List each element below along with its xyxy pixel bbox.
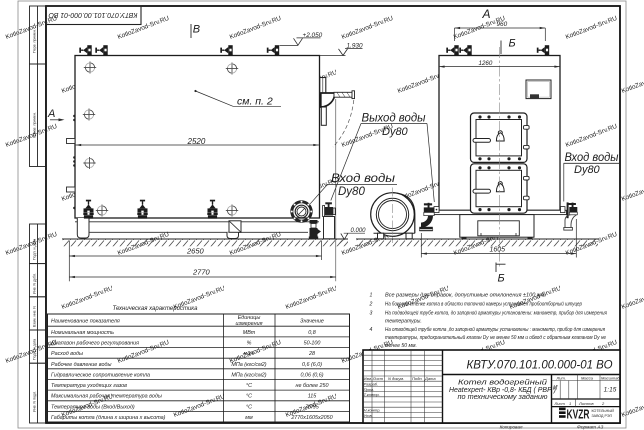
svg-text:Значение: Значение <box>300 319 324 325</box>
svg-text:Dy80: Dy80 <box>338 186 365 198</box>
svg-text:Dy80: Dy80 <box>382 126 409 138</box>
svg-text:Номинальная мощность: Номинальная мощность <box>51 330 114 336</box>
svg-text:Температура воды (Вход/Выход): Температура воды (Вход/Выход) <box>51 404 135 410</box>
svg-text:%: % <box>247 341 252 347</box>
svg-text:3: 3 <box>370 311 373 317</box>
svg-text:Dy80: Dy80 <box>574 164 601 176</box>
svg-text:115: 115 <box>308 394 318 400</box>
svg-text:°С: °С <box>246 394 252 400</box>
svg-text:Подп. и дата: Подп. и дата <box>33 239 37 260</box>
svg-text:70/95: 70/95 <box>305 404 319 410</box>
svg-text:Т.контр.: Т.контр. <box>364 392 380 397</box>
svg-text:Взам. инв. N: Взам. инв. N <box>33 306 37 327</box>
svg-text:1:15: 1:15 <box>604 387 617 394</box>
svg-text:Подп.: Подп. <box>412 376 423 381</box>
svg-text:2: 2 <box>369 302 373 308</box>
svg-text:Лит.: Лит. <box>556 376 566 381</box>
svg-text:МВт: МВт <box>243 330 256 336</box>
svg-text:1260: 1260 <box>479 60 493 67</box>
svg-text:Максимальная рабочая температу: Максимальная рабочая температура воды <box>51 394 162 400</box>
svg-text:см. п. 2: см. п. 2 <box>237 95 273 107</box>
svg-text:2770х1605х2050: 2770х1605х2050 <box>290 415 332 421</box>
svg-text:4: 4 <box>370 327 373 333</box>
svg-text:Подп. и дата: Подп. и дата <box>33 339 37 360</box>
svg-text:°С: °С <box>246 383 252 389</box>
svg-text:Перв. примен.: Перв. примен. <box>33 29 37 53</box>
svg-text:Выход воды: Выход воды <box>362 113 427 125</box>
svg-text:Все размеры для справок, допус: Все размеры для справок, допустимые откл… <box>385 293 546 299</box>
svg-text:Габариты котла (длина х ширина: Габариты котла (длина х ширина х высота) <box>51 415 166 421</box>
svg-text:КВТУ.070.101.00.000-01 ВО: КВТУ.070.101.00.000-01 ВО <box>48 11 137 20</box>
svg-text:Утв.: Утв. <box>364 413 373 418</box>
svg-text:N докум.: N докум. <box>388 376 404 381</box>
svg-text:Наименование показателя: Наименование показателя <box>51 319 120 325</box>
svg-text:2520: 2520 <box>187 137 206 146</box>
svg-text:Лист: Лист <box>372 376 384 381</box>
svg-text:Температура уходящих газов: Температура уходящих газов <box>51 383 127 389</box>
svg-text:И: И <box>553 384 558 391</box>
svg-text:Диапазон рабочего регулировани: Диапазон рабочего регулирования <box>50 341 139 347</box>
svg-text:На отводящей трубе котла ,до з: На отводящей трубе котла ,до запорной ар… <box>385 326 605 333</box>
svg-text:А: А <box>47 108 55 120</box>
svg-text:1: 1 <box>569 401 571 406</box>
svg-text:Б: Б <box>509 38 516 50</box>
svg-text:А: А <box>482 7 491 21</box>
svg-text:960: 960 <box>497 21 508 28</box>
svg-text:не более 250: не более 250 <box>296 383 329 389</box>
svg-text:измерения: измерения <box>236 321 263 327</box>
svg-text:Расход воды: Расход воды <box>51 351 83 357</box>
svg-text:Инв. N подл.: Инв. N подл. <box>33 391 37 412</box>
svg-text:МПа (кгс/см2): МПа (кгс/см2) <box>231 372 266 378</box>
svg-text:температуры.: температуры. <box>385 318 422 324</box>
svg-text:1605: 1605 <box>490 247 506 254</box>
svg-text:по техническому заданию: по техническому заданию <box>458 393 548 401</box>
svg-text:Масса: Масса <box>581 376 594 381</box>
svg-text:2650: 2650 <box>186 247 205 256</box>
svg-text:28: 28 <box>308 351 315 357</box>
svg-text:Формат А3: Формат А3 <box>577 425 604 430</box>
svg-text:КВТУ.070.101.00.000-01 ВО: КВТУ.070.101.00.000-01 ВО <box>467 357 613 371</box>
svg-text:Котел водогрейный: Котел водогрейный <box>458 378 547 386</box>
svg-text:Рабочее давление воды: Рабочее давление воды <box>51 362 111 368</box>
svg-text:Инв. N дубл.: Инв. N дубл. <box>33 273 37 294</box>
svg-text:м3/ч: м3/ч <box>244 351 255 357</box>
svg-text:Вход воды: Вход воды <box>331 173 396 185</box>
svg-text:Heatexpert- КВр -0,8- КБД ( РВ: Heatexpert- КВр -0,8- КБД ( РВР ) <box>449 387 556 394</box>
svg-text:Вход воды: Вход воды <box>565 152 620 164</box>
svg-text:На боковой стенке котла в обла: На боковой стенке котла в области топочн… <box>385 301 582 308</box>
svg-text:Копировал: Копировал <box>500 425 523 430</box>
svg-text:2770: 2770 <box>192 268 211 277</box>
svg-text:Изм.: Изм. <box>364 376 373 381</box>
svg-text:0,06 (0,6): 0,06 (0,6) <box>300 372 323 378</box>
svg-text:ЗАВОД РЭП: ЗАВОД РЭП <box>592 414 613 418</box>
svg-text:Б: Б <box>498 273 505 285</box>
svg-text:температуры, предохранительный: температуры, предохранительный клапан Dу… <box>385 334 606 341</box>
svg-text:Листов: Листов <box>578 401 594 406</box>
svg-text:МПа (кгс/см2): МПа (кгс/см2) <box>231 362 266 368</box>
svg-text:Техническая характеристика: Техническая характеристика <box>113 306 199 312</box>
svg-text:0,6 (6,0): 0,6 (6,0) <box>302 362 322 368</box>
svg-text:КОТЕЛЬНЫЙ: КОТЕЛЬНЫЙ <box>592 409 615 413</box>
svg-text:В: В <box>193 24 200 36</box>
svg-text:На подводящей трубе котла, д: На подводящей трубе котла, до запорной а… <box>385 310 607 317</box>
svg-text:менее 50 мм.: менее 50 мм. <box>385 343 417 349</box>
svg-text:0,8: 0,8 <box>308 330 316 336</box>
svg-text:50-100: 50-100 <box>304 341 321 347</box>
svg-text:Дата: Дата <box>424 376 436 381</box>
svg-text:°С: °С <box>246 404 252 410</box>
svg-text:Справ. примен.: Справ. примен. <box>33 112 37 138</box>
svg-text:Лист: Лист <box>554 401 566 406</box>
svg-text:Гидравлическое сопротивление к: Гидравлическое сопротивление котла <box>51 372 150 378</box>
svg-text:KVZR: KVZR <box>567 407 590 421</box>
svg-text:мм: мм <box>245 415 253 421</box>
svg-text:Масштаб: Масштаб <box>601 376 620 381</box>
svg-text:1: 1 <box>370 293 373 299</box>
